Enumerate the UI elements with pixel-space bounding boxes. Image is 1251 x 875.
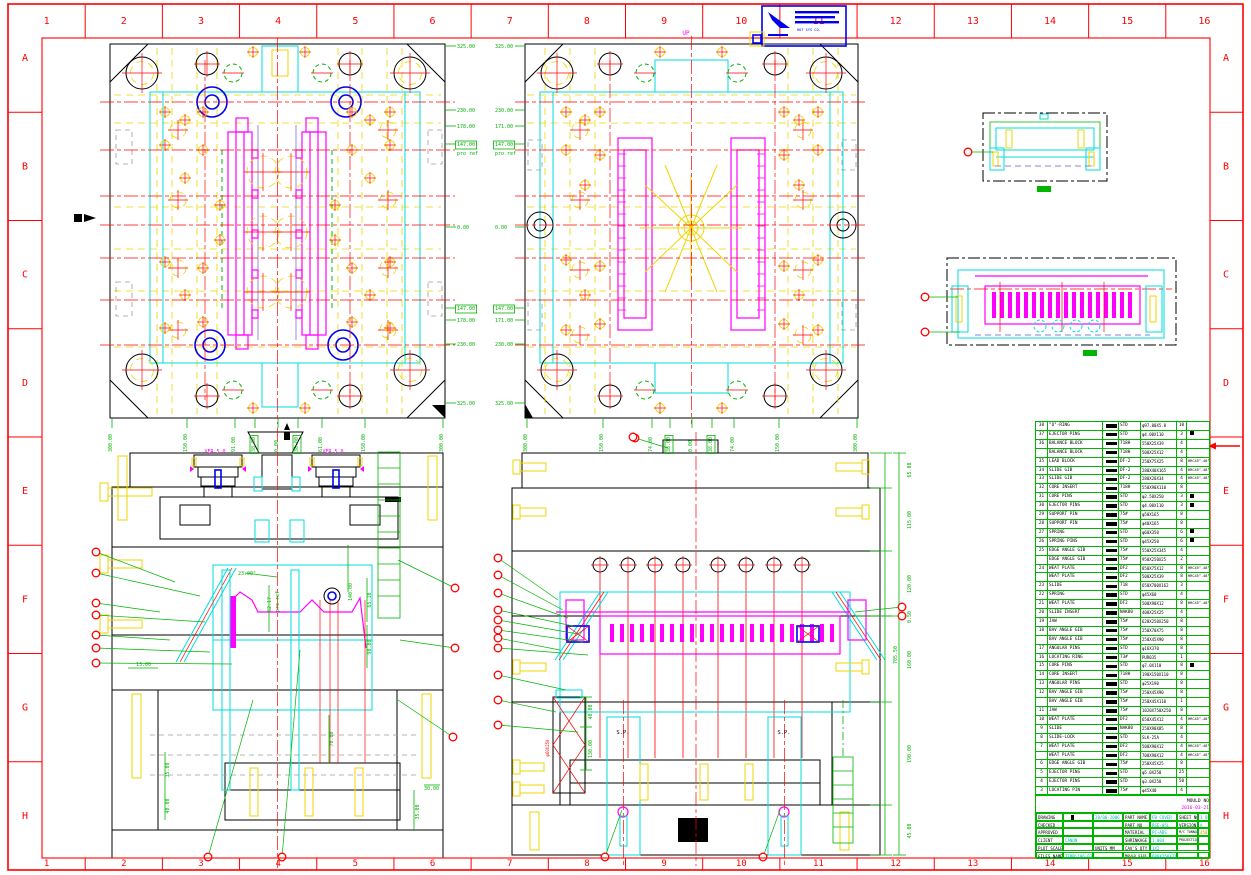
dim-label: 35.00 (415, 804, 421, 819)
table-cell (1103, 493, 1119, 501)
title-block-cell: CAV'S QTY (1123, 844, 1150, 852)
table-cell (1103, 778, 1119, 786)
table-cell: 25 (1177, 769, 1187, 777)
table-row: BAV ANGLE GIB75#250X45X908 (1036, 636, 1209, 645)
dim-label: 325.00 (457, 401, 475, 407)
table-cell (1103, 565, 1119, 573)
table-cell: CORE PINS (1048, 493, 1103, 501)
table-cell: DF2 (1119, 752, 1141, 760)
table-cell: 35 (1036, 458, 1048, 466)
dim-label: 65.10 (367, 592, 373, 607)
dim-label: 178.00 (457, 124, 475, 130)
title-block-cell: A (1198, 821, 1209, 829)
table-row: 36BALANCE BLOCK718H550X25X394 (1036, 440, 1209, 449)
table-cell: STD (1119, 529, 1141, 537)
table-cell: LOCATING RING (1048, 654, 1103, 662)
balloon-marker (451, 644, 459, 652)
table-cell: 25 (1036, 547, 1048, 555)
table-row: 26SPRING PINSSTDφ45X2506 (1036, 538, 1209, 547)
table-cell (1103, 467, 1119, 475)
title-block-cell (1198, 844, 1209, 852)
table-cell (1103, 716, 1119, 724)
dimension-chain (870, 453, 906, 855)
table-cell: φ60X350 (1141, 529, 1177, 537)
table-cell: 250X90X85 (1141, 725, 1177, 733)
title-block-cell (1177, 844, 1198, 852)
table-cell: HRC45°-48° (1187, 565, 1209, 573)
table-cell: 4 (1177, 716, 1187, 724)
table-cell: 620X250X250 (1141, 618, 1177, 626)
table-cell: 4 (1177, 743, 1187, 751)
table-cell: 13 (1036, 680, 1048, 688)
table-row: 30EJECTOR PINSSTDφ4.00X1103 (1036, 502, 1209, 511)
table-cell: SLIDE-LOCK (1048, 734, 1103, 742)
grid-col-label: 1 (44, 859, 49, 869)
table-cell (1103, 627, 1119, 635)
spring-symbol (378, 452, 400, 618)
table-row: 20SLIDE INSERTNAK80400X25X254 (1036, 609, 1209, 618)
table-cell: 75# (1119, 520, 1141, 528)
table-cell: 250X75X25 (1141, 458, 1177, 466)
table-cell (1103, 475, 1119, 483)
table-cell: 27 (1036, 529, 1048, 537)
table-cell: 37 (1036, 431, 1048, 439)
table-cell: φ3.0X250 (1141, 778, 1177, 786)
table-cell (1103, 760, 1119, 768)
balloon-marker (494, 571, 502, 579)
table-cell: DF2 (1119, 600, 1141, 608)
dim-label: pro ref (457, 151, 478, 157)
cad-drawing-page: 1122334455667788991010111112121313141415… (0, 0, 1251, 875)
grid-row-label: A (1223, 53, 1229, 64)
table-cell: 30 (1036, 502, 1048, 510)
grid-col-label: 8 (584, 859, 589, 869)
dim-label: 230.00 (495, 342, 513, 348)
dim-label: VER 5.0 (204, 449, 225, 455)
table-cell: 4 (1177, 609, 1187, 617)
title-block-cell: PART NAME (1123, 813, 1150, 821)
dim-label: 38.00 (708, 437, 714, 452)
grid-col-label: 9 (661, 16, 667, 27)
table-cell (1103, 458, 1119, 466)
grid-col-label: 13 (967, 859, 978, 869)
dim-label: 65.00 (907, 462, 913, 477)
table-cell: 650X700X162 (1141, 582, 1177, 590)
dim-label: 38.00 (666, 437, 672, 452)
dim-label: 150.00 (599, 434, 605, 452)
table-cell: STD (1119, 422, 1141, 430)
dim-label: 115.00 (907, 511, 913, 529)
grid-col-label: 16 (1198, 16, 1210, 27)
table-cell (1103, 689, 1119, 697)
table-cell: 23 (1036, 582, 1048, 590)
detail-view-bottom (947, 258, 1176, 356)
title-block-cell: CHECKED (1036, 821, 1063, 829)
table-cell: 8 (1036, 734, 1048, 742)
table-cell: 4 (1177, 787, 1187, 795)
grid-col-label: 3 (198, 16, 204, 27)
table-cell (1187, 556, 1209, 564)
table-row: 29SUPPORT PIN75#φ50X1658 (1036, 511, 1209, 520)
table-cell: φ97.00X5.8 (1141, 422, 1177, 430)
grid-col-label: 12 (890, 16, 902, 27)
table-cell (1103, 440, 1119, 448)
section-marker (1037, 186, 1051, 192)
grid-col-label: 1 (44, 16, 50, 27)
title-block-cell (1093, 852, 1123, 860)
table-cell: 718H (1119, 671, 1141, 679)
balloon-marker (921, 293, 929, 301)
table-cell: SLIDE GIB (1048, 475, 1103, 483)
dim-label: HOT SYS CO. (797, 28, 821, 32)
table-cell: WEAT PLATE (1048, 716, 1103, 724)
table-row: 16LOCATING RING73#PUR0351 (1036, 654, 1209, 663)
dim-label: 178.00 (457, 318, 475, 324)
table-row: WEAT PLATEDF2500X25X398HRC45°-48° (1036, 573, 1209, 582)
dim-label: 150.00 (775, 434, 781, 452)
table-cell (1036, 752, 1048, 760)
title-block-cell: PC+ABS (1150, 828, 1177, 836)
dim-label: 62.17 (267, 597, 273, 612)
grid-col-label: 10 (736, 859, 747, 869)
dim-label: S.P. (616, 730, 629, 736)
table-cell: 700X90X12 (1141, 752, 1177, 760)
table-cell: 21 (1036, 600, 1048, 608)
table-cell: 3 (1036, 787, 1048, 795)
table-cell: EDGE ANGLE GIB (1048, 547, 1103, 555)
valve-gate (308, 455, 364, 497)
table-cell (1187, 609, 1209, 617)
table-cell: LEAD BLOCK (1048, 458, 1103, 466)
table-cell: 8 (1177, 689, 1187, 697)
table-cell: EJECTOR PINS (1048, 769, 1103, 777)
valve-gate (190, 455, 246, 497)
table-cell: φ45X40 (1141, 787, 1177, 795)
dim-label: 147.00 (495, 306, 513, 312)
grid-col-label: 7 (507, 16, 513, 27)
balloon-marker (494, 626, 502, 634)
dim-label: 40.00 (588, 704, 594, 719)
view-cavity-plan (515, 36, 868, 424)
title-block: MOULD NO2016-03-21DRAWING28/08-2006PART … (1035, 795, 1210, 858)
table-cell (1187, 422, 1209, 430)
title-block-cell: SHRINKAGE (1123, 836, 1150, 844)
table-cell: 4 (1177, 547, 1187, 555)
section-arrow-right-icon (1208, 443, 1240, 450)
table-row: 13ANGULAR PINSSTDφ25X1908 (1036, 680, 1209, 689)
balloon-marker (92, 631, 100, 639)
table-cell: 718H (1119, 484, 1141, 492)
table-cell: STD (1119, 778, 1141, 786)
balloon-marker (92, 599, 100, 607)
table-cell (1103, 743, 1119, 751)
table-cell (1103, 449, 1119, 457)
table-cell: 650X45X12 (1141, 716, 1177, 724)
balloon-marker (92, 659, 100, 667)
table-cell: SLIDE GIB (1048, 467, 1103, 475)
table-cell: STD (1119, 734, 1141, 742)
table-cell (1187, 627, 1209, 635)
dim-label: 230.00 (495, 108, 513, 114)
table-row: 25EDGE ANGLE GIB75#550X25X3454 (1036, 547, 1209, 556)
table-cell (1187, 787, 1209, 795)
dim-label: 147.00 (457, 142, 475, 148)
grid-col-label: 12 (890, 859, 901, 869)
table-cell: DF2 (1119, 743, 1141, 751)
dim-label: 300.00 (108, 434, 114, 452)
table-cell: 24 (1036, 565, 1048, 573)
table-cell (1187, 769, 1209, 777)
table-cell: 32 (1036, 484, 1048, 492)
table-row: 38"O"-RINGSTDφ97.00X5.810 (1036, 422, 1209, 431)
table-cell: DF2 (1119, 716, 1141, 724)
dim-label: 130.00 (588, 740, 594, 758)
table-cell: BALANCE BLOCK (1048, 440, 1103, 448)
table-cell: 4 (1177, 475, 1187, 483)
table-row: 6EDGE ANGLE GIB75#250X45X258 (1036, 760, 1209, 769)
balloon-marker (494, 721, 502, 729)
table-row: 10WEAT PLATEDF2650X45X124HRC45°-48° (1036, 716, 1209, 725)
dim-label: 70.00 (329, 731, 335, 746)
table-cell: 8 (1177, 645, 1187, 653)
grid-row-label: D (1223, 378, 1229, 389)
table-row: 5EJECTOR PINSSTDφ5.0X25025 (1036, 769, 1209, 778)
table-row: 32CORE INSERT718H550X90X1108 (1036, 484, 1209, 493)
dim-label: UP (682, 30, 690, 37)
table-cell: EDGE ANGLE GIB (1048, 556, 1103, 564)
balloon-marker (494, 606, 502, 614)
dim-label: 147.00 (457, 306, 475, 312)
title-block-cell: M/C TONNAGE (1177, 828, 1198, 836)
table-cell: φ16X370 (1141, 645, 1177, 653)
balloon-marker (92, 611, 100, 619)
table-cell (1187, 662, 1209, 670)
grid-row-label: A (22, 53, 28, 64)
dim-label: 325.00 (495, 44, 513, 50)
table-cell (1187, 582, 1209, 590)
table-cell: STD (1119, 502, 1141, 510)
title-block-cell: DRAWING (1036, 813, 1063, 821)
table-cell (1187, 538, 1209, 546)
table-cell (1103, 645, 1119, 653)
title-block-cell: 1.004 (1150, 836, 1177, 844)
balloon-marker (601, 853, 609, 861)
table-cell: WEAT PLATE (1048, 752, 1103, 760)
title-block-cell: 600X250X718 (1150, 852, 1177, 860)
title-block-cell: RSE-05L (1150, 821, 1177, 829)
table-cell: WEAT PLATE (1048, 743, 1103, 751)
table-cell: SUPPORT PIN (1048, 520, 1103, 528)
balloon-marker (759, 853, 767, 861)
table-cell: BAV ANGLE GIB (1048, 689, 1103, 697)
table-row: 34SLIDE GIBDF-2280X40X1654HRC45°-48° (1036, 467, 1209, 476)
table-row: 15CORE PINSSTDφ7.0X1108 (1036, 662, 1209, 671)
table-cell: 7 (1036, 743, 1048, 751)
balloon-marker (494, 671, 502, 679)
grid-row-label: H (1223, 811, 1229, 822)
table-cell (1103, 556, 1119, 564)
dim-label: 325.00 (495, 401, 513, 407)
ejector-row (591, 556, 811, 758)
dim-label: 140.00 (348, 583, 354, 601)
table-row: 27SPRINGSTDφ60X3506 (1036, 529, 1209, 538)
table-cell: BALANCE BLOCK (1048, 449, 1103, 457)
table-cell: 250X45X90 (1141, 689, 1177, 697)
table-cell (1103, 734, 1119, 742)
table-cell (1103, 636, 1119, 644)
grid-col-label: 4 (275, 859, 280, 869)
balloon-marker (494, 696, 502, 704)
table-cell: HRC45°-48° (1187, 743, 1209, 751)
table-cell (1103, 680, 1119, 688)
dim-label: 74.00 (730, 437, 736, 452)
table-cell: 73# (1119, 654, 1141, 662)
table-cell (1103, 547, 1119, 555)
dim-label: 705.50 (893, 646, 899, 664)
table-cell: φ45X250 (1141, 538, 1177, 546)
table-cell: BAV ANGLE GIB (1048, 636, 1103, 644)
table-cell: DF-2 (1119, 467, 1141, 475)
table-cell: 26 (1036, 538, 1048, 546)
table-row: 17ANGULAR PINSSTDφ16X3708 (1036, 645, 1209, 654)
table-cell: 400X25X25 (1141, 609, 1177, 617)
table-cell: 8 (1177, 725, 1187, 733)
title-block-cell (1063, 844, 1093, 852)
table-cell: 4 (1177, 591, 1187, 599)
title-block-cell: PLOT SCALE (1036, 844, 1063, 852)
table-cell: 6 (1177, 538, 1187, 546)
table-cell: 17 (1036, 645, 1048, 653)
table-cell (1103, 618, 1119, 626)
table-cell: STD (1119, 662, 1141, 670)
table-cell: 850X75X12 (1141, 565, 1177, 573)
table-cell: 3 (1177, 582, 1187, 590)
table-cell: 75# (1119, 618, 1141, 626)
table-cell: φ45X60 (1141, 591, 1177, 599)
grid-row-label: G (22, 703, 28, 714)
title-block-cell (1063, 828, 1093, 836)
table-cell: BAV ANGLE GIB (1048, 627, 1103, 635)
balloon-markers (92, 148, 972, 861)
title-block-cell (1063, 813, 1093, 821)
table-cell: 8 (1177, 662, 1187, 670)
table-cell: STD (1119, 538, 1141, 546)
table-cell: STD (1119, 645, 1141, 653)
table-cell (1187, 591, 1209, 599)
title-block-cell (1063, 821, 1093, 829)
table-cell (1103, 600, 1119, 608)
table-cell: CORE INSERT (1048, 484, 1103, 492)
guide-pin (122, 53, 162, 93)
table-cell: HRC45°-48° (1187, 600, 1209, 608)
table-cell: 8 (1177, 636, 1187, 644)
table-cell (1187, 707, 1209, 715)
table-row: 4EJECTOR PINSSTDφ3.0X25050 (1036, 778, 1209, 787)
title-block-cell: MOULD NO (1124, 798, 1209, 805)
grid-row-label: G (1223, 703, 1229, 714)
grid-col-label: 9 (661, 859, 666, 869)
plate-corner-mark (432, 405, 445, 418)
bolts (100, 456, 437, 816)
table-row: 31CORE PINSSTDφ2.50X2503 (1036, 493, 1209, 502)
table-cell: 18 (1036, 627, 1048, 635)
table-cell: 250X45X110 (1141, 698, 1177, 706)
grid-row-label: C (1223, 270, 1229, 281)
title-block-cell: UNITS MM (1093, 844, 1123, 852)
table-cell: 9 (1036, 725, 1048, 733)
dim-label: 0.00 (688, 440, 694, 452)
balloon-marker (964, 148, 972, 156)
table-cell: φ25X190 (1141, 680, 1177, 688)
table-cell (1103, 529, 1119, 537)
table-cell: WEAT PLATE (1048, 573, 1103, 581)
table-cell: EJECTOR PINS (1048, 778, 1103, 786)
table-cell: 718H (1119, 440, 1141, 448)
table-cell (1187, 654, 1209, 662)
dim-label: 300.00 (439, 434, 445, 452)
table-cell: HRC45°-48° (1187, 458, 1209, 466)
dim-label: 150.00 (183, 434, 189, 452)
balloon-marker (898, 612, 906, 620)
dim-label: 150.00 (361, 434, 367, 452)
balloon-marker (92, 548, 100, 556)
dim-label: 23.00° (238, 571, 256, 577)
table-cell: JAW (1048, 618, 1103, 626)
table-cell: 8 (1177, 484, 1187, 492)
table-cell: 3 (1177, 431, 1187, 439)
balloon-marker (494, 554, 502, 562)
table-cell (1103, 520, 1119, 528)
grid-col-label: 5 (353, 859, 358, 869)
title-block-cell: CANON (1063, 836, 1093, 844)
table-cell: 2 (1177, 556, 1187, 564)
grid-col-label: 14 (1045, 859, 1056, 869)
title-block-cell (1198, 836, 1209, 844)
dim-label: 0.00 (495, 225, 507, 231)
table-cell: 8 (1177, 573, 1187, 581)
table-cell (1103, 769, 1119, 777)
parts-list-table: 38"O"-RINGSTDφ97.00X5.81037EJECTOR PINSS… (1035, 421, 1210, 795)
grid-row-label: F (1223, 594, 1229, 605)
table-cell: 500X90X12 (1141, 600, 1177, 608)
table-cell (1103, 707, 1119, 715)
table-cell: 8 (1177, 707, 1187, 715)
guide-pin (390, 53, 430, 93)
title-block-cell (1093, 828, 1123, 836)
table-row: BALANCE BLOCK718H500X25X124 (1036, 449, 1209, 458)
table-cell (1187, 671, 1209, 679)
cavity-connector-right (731, 138, 765, 330)
table-cell (1187, 689, 1209, 697)
table-cell (1187, 778, 1209, 786)
title-block-cell: SHEET NO (1177, 813, 1198, 821)
table-cell: 8 (1177, 618, 1187, 626)
table-cell: EJECTOR PINS (1048, 431, 1103, 439)
table-cell (1187, 734, 1209, 742)
grid-col-label: 2 (121, 859, 126, 869)
balloon-marker (921, 328, 929, 336)
spring-section (553, 690, 585, 793)
table-cell: "O"-RING (1048, 422, 1103, 430)
table-cell (1103, 752, 1119, 760)
table-cell: 8 (1177, 600, 1187, 608)
table-cell: STD (1119, 591, 1141, 599)
grid-row-label: D (22, 378, 28, 389)
table-cell: PUR035 (1141, 654, 1177, 662)
table-cell: EDGE ANGLE GIB (1048, 760, 1103, 768)
table-cell: 14 (1036, 671, 1048, 679)
table-cell: φ7.0X110 (1141, 662, 1177, 670)
